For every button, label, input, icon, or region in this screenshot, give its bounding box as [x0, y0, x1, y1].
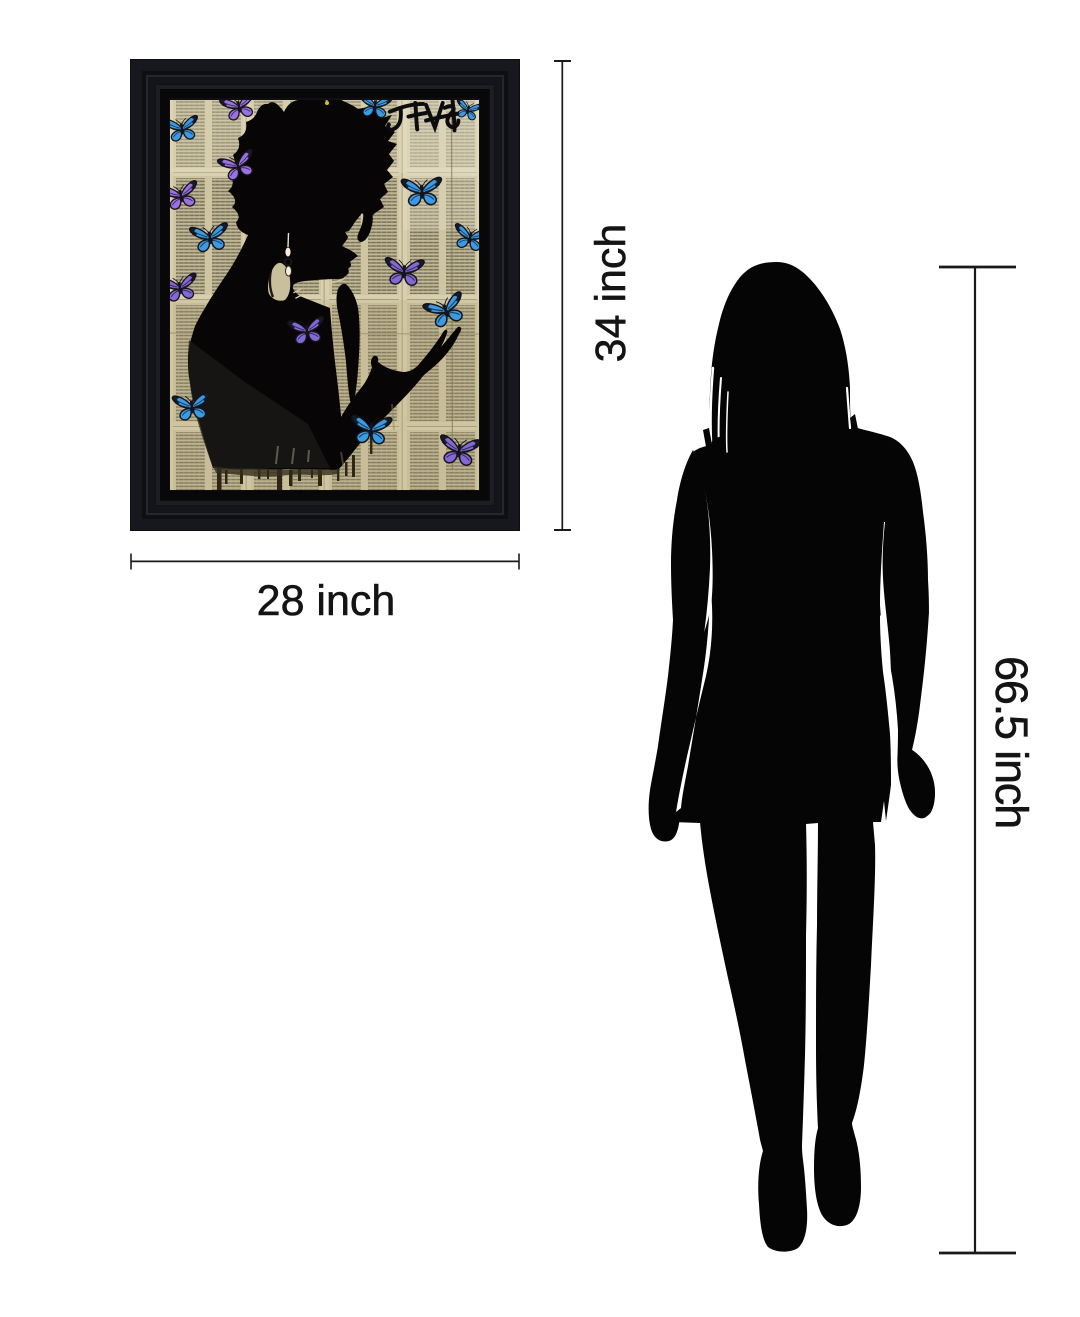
- svg-text:34 inch: 34 inch: [587, 224, 635, 363]
- svg-text:28 inch: 28 inch: [257, 577, 396, 625]
- svg-text:66.5 inch: 66.5 inch: [986, 656, 1037, 828]
